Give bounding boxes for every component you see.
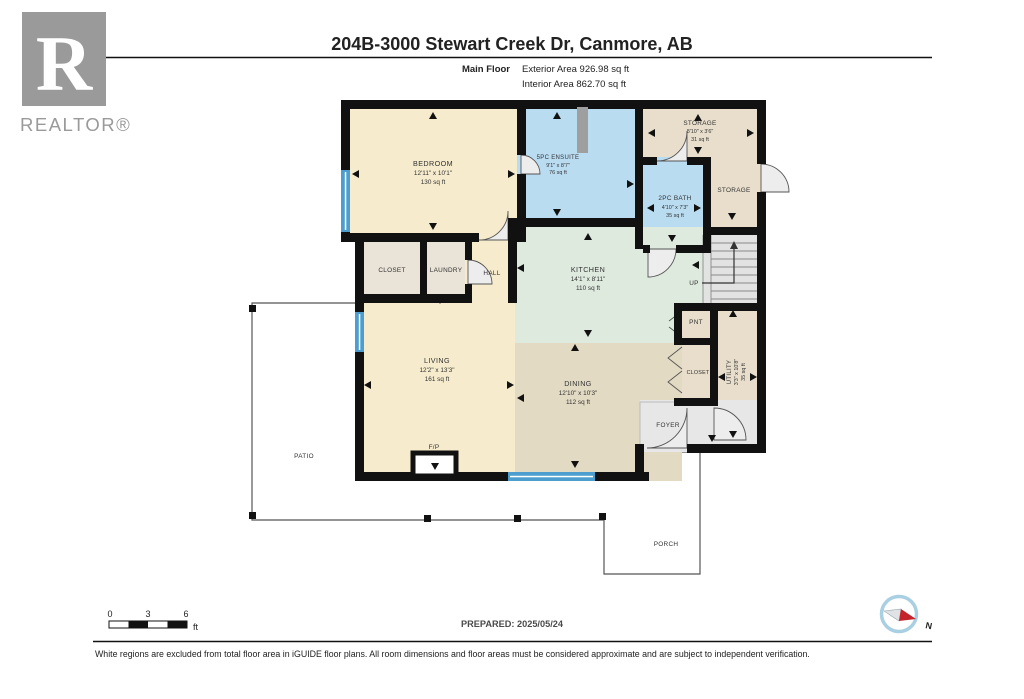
scale-bar-segment [168, 621, 188, 628]
kitchen-label: KITCHEN [571, 265, 605, 274]
bath-label: 2PC BATH [658, 195, 691, 202]
exterior-door-arc [761, 164, 789, 192]
laundry-label: LAUNDRY [430, 267, 463, 274]
dining-dims: 12'10" x 10'3" [559, 390, 598, 397]
bedroom-dims: 12'11" x 10'1" [414, 170, 452, 177]
scale-tick-6: 6 [183, 609, 188, 619]
foyer-label: FOYER [656, 422, 680, 429]
wall [710, 311, 718, 403]
wall [355, 233, 364, 481]
compass-n-label: N [925, 620, 933, 631]
floor-plan-page: R REALTOR® 204B-3000 Stewart Creek Dr, C… [0, 0, 1024, 699]
window-glass-line [359, 314, 361, 350]
patio-post [249, 305, 256, 312]
storage-area-label: 31 sq ft [691, 137, 709, 143]
hall-label: HALL [483, 270, 500, 277]
wall [676, 245, 711, 253]
scale-tick-3: 3 [145, 609, 150, 619]
utility-area-label: 35 sq ft [741, 363, 747, 381]
pantry-area [682, 311, 710, 341]
window-glass-line [510, 476, 593, 478]
closet-label: CLOSET [378, 267, 405, 274]
patio-post [249, 512, 256, 519]
ensuite-label: 5PC ENSUITE [537, 155, 580, 161]
shower-glass [577, 107, 588, 153]
wall [635, 444, 644, 481]
patio-post [599, 513, 606, 520]
window-glass-line [345, 172, 347, 230]
up-label: UP [689, 280, 698, 287]
wall [635, 100, 643, 249]
wall [674, 311, 682, 338]
wall [465, 284, 472, 300]
realtor-logo: R REALTOR® [20, 12, 131, 135]
wall [355, 294, 472, 303]
wall [465, 242, 472, 260]
wall [517, 100, 526, 155]
bath-dims: 4'10" x 7'3" [662, 205, 689, 211]
wall [341, 233, 479, 242]
floor-plan-canvas: R REALTOR® 204B-3000 Stewart Creek Dr, C… [0, 0, 1024, 699]
realtor-logo-r: R [36, 20, 94, 107]
wall [711, 227, 766, 235]
wall [674, 303, 766, 311]
wall [643, 157, 657, 165]
storage2-label: STORAGE [717, 187, 750, 194]
living-label: LIVING [424, 356, 450, 365]
scale-bar-segment [129, 621, 149, 628]
prepared-date: PREPARED: 2025/05/24 [461, 619, 564, 629]
wall [517, 218, 643, 227]
floor-label: Main Floor [462, 64, 510, 75]
page-title: 204B-3000 Stewart Creek Dr, Canmore, AB [331, 34, 693, 54]
scale-bar: 0 3 6 ft [107, 609, 198, 632]
fireplace-label: F/P [429, 444, 440, 451]
storage2-area [703, 157, 766, 236]
wall [687, 157, 703, 165]
wall [420, 242, 427, 300]
compass: N [882, 597, 934, 632]
bedroom-label: BEDROOM [413, 159, 453, 168]
realtor-logo-wordmark: REALTOR® [20, 114, 131, 135]
pantry-label: PNT [689, 319, 703, 326]
interior-area: Interior Area 862.70 sq ft [522, 79, 626, 90]
patio-post [514, 515, 521, 522]
wall [517, 174, 526, 242]
kitchen-area-label: 110 sq ft [576, 285, 600, 292]
wall [355, 472, 649, 481]
wall [687, 444, 766, 453]
dining-label: DINING [564, 379, 592, 388]
utility-label: UTILITY [727, 360, 733, 384]
scale-tick-0: 0 [107, 609, 112, 619]
disclaimer-text: White regions are excluded from total fl… [95, 649, 810, 659]
dining-area-label: 112 sq ft [566, 399, 590, 406]
wall [674, 338, 714, 345]
storage-label: STORAGE [683, 120, 716, 127]
bedroom-area-label: 130 sq ft [421, 179, 446, 186]
scale-unit: ft [193, 622, 199, 632]
wall [508, 218, 517, 303]
bath-area-label: 35 sq ft [666, 213, 684, 219]
storage-dims: 8'10" x 3'6" [687, 129, 714, 135]
porch-label: PORCH [654, 541, 679, 548]
utility-dims: 3'3" x 10'8" [734, 359, 740, 386]
patio-post [424, 515, 431, 522]
wall [341, 100, 766, 109]
living-dims: 12'2" x 13'3" [419, 367, 454, 374]
ensuite-area-label: 76 sq ft [549, 170, 567, 176]
closet2-label: CLOSET [687, 370, 710, 376]
living-area-label: 161 sq ft [425, 376, 450, 383]
ensuite-dims: 9'1" x 8'7" [546, 163, 570, 169]
wall [703, 157, 711, 253]
wall [674, 398, 718, 406]
wall [643, 245, 650, 253]
kitchen-dims: 14'1" x 8'11" [571, 276, 606, 283]
exterior-area: Exterior Area 926.98 sq ft [522, 64, 630, 75]
wall [757, 100, 766, 164]
patio-label: PATIO [294, 453, 314, 460]
